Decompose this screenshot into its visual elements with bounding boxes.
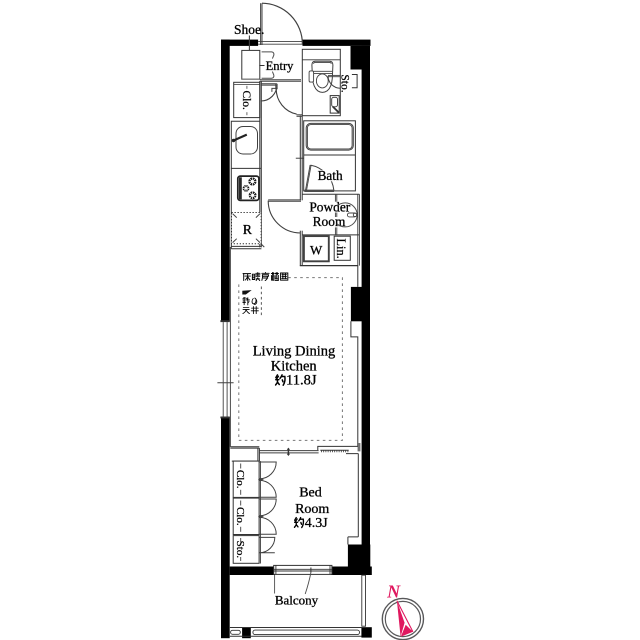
- svg-text:Balcony: Balcony: [275, 592, 319, 607]
- svg-text:Clo.: Clo.: [234, 507, 246, 526]
- svg-text:Room: Room: [313, 214, 346, 229]
- svg-text:11.8J: 11.8J: [286, 373, 317, 389]
- svg-text:Room: Room: [295, 502, 329, 517]
- svg-text:Living Dining: Living Dining: [253, 344, 336, 360]
- svg-text:Sto.: Sto.: [234, 541, 246, 559]
- svg-text:Powder: Powder: [309, 199, 350, 214]
- svg-text:Clo.: Clo.: [234, 470, 246, 489]
- svg-text:Clo.: Clo.: [240, 90, 252, 110]
- svg-text:Lin.: Lin.: [334, 239, 348, 259]
- svg-text:N: N: [386, 582, 401, 602]
- svg-text:4.3J: 4.3J: [305, 516, 329, 531]
- svg-text:W: W: [310, 243, 323, 258]
- svg-text:Sto.: Sto.: [339, 74, 351, 92]
- svg-text:Entry: Entry: [266, 59, 295, 73]
- svg-text:Bed: Bed: [299, 485, 322, 500]
- svg-text:Bath: Bath: [318, 168, 343, 183]
- svg-text:Shoe.: Shoe.: [234, 22, 264, 37]
- svg-text:R: R: [243, 222, 253, 237]
